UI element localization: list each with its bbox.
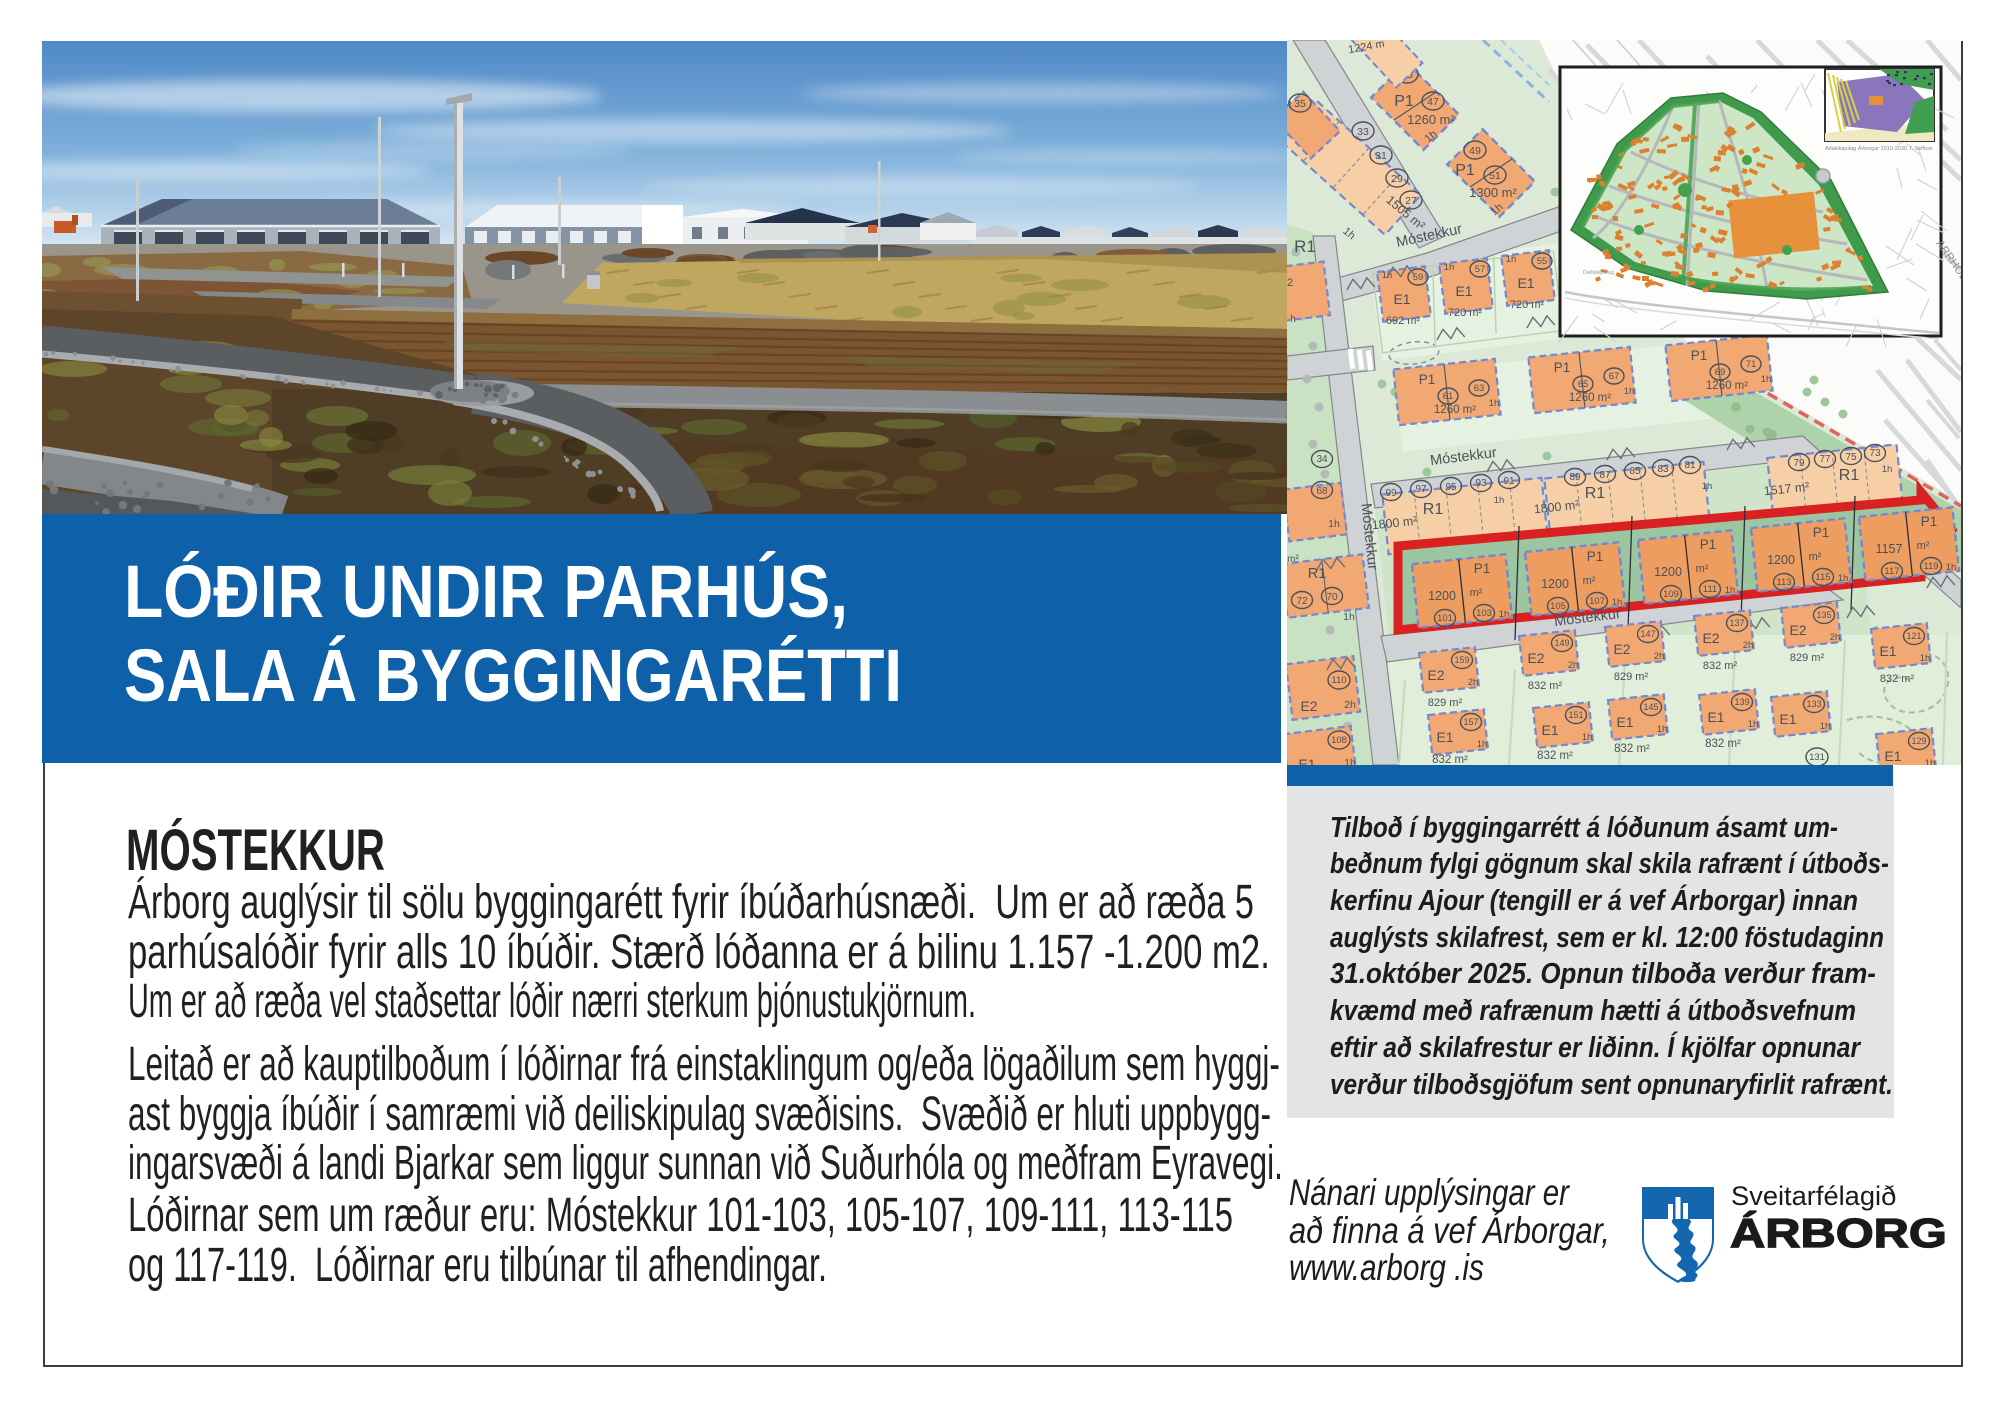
svg-text:m²: m² <box>1917 540 1930 552</box>
svg-text:E2: E2 <box>1789 622 1806 638</box>
svg-text:E1: E1 <box>1779 711 1796 727</box>
svg-text:R1: R1 <box>1585 485 1606 502</box>
svg-text:E2: E2 <box>1613 641 1630 657</box>
svg-text:147: 147 <box>1640 629 1655 639</box>
svg-text:P1: P1 <box>1921 514 1938 529</box>
svg-text:1260 m²: 1260 m² <box>1706 380 1748 392</box>
svg-text:E2: E2 <box>1300 698 1317 714</box>
svg-text:91: 91 <box>1503 476 1515 487</box>
svg-text:121: 121 <box>1906 631 1921 641</box>
svg-text:1260 m²: 1260 m² <box>1569 392 1611 404</box>
svg-text:109: 109 <box>1663 589 1679 600</box>
svg-text:110: 110 <box>1331 675 1346 686</box>
svg-text:R1: R1 <box>1423 501 1444 518</box>
svg-text:m²: m² <box>1809 551 1822 563</box>
svg-text:83: 83 <box>1657 464 1669 475</box>
svg-text:R1: R1 <box>1294 237 1316 256</box>
svg-text:829 m²: 829 m² <box>1790 652 1825 664</box>
svg-text:1h: 1h <box>1657 724 1668 735</box>
svg-text:70: 70 <box>1326 592 1338 603</box>
svg-text:m²: m² <box>1287 554 1299 565</box>
svg-text:99: 99 <box>1385 488 1397 499</box>
svg-text:35: 35 <box>1294 98 1306 110</box>
svg-text:1200: 1200 <box>1767 553 1795 567</box>
svg-text:E1: E1 <box>1616 714 1633 730</box>
svg-text:P1: P1 <box>1419 372 1436 387</box>
svg-text:1h: 1h <box>1494 495 1505 506</box>
svg-text:829 m²: 829 m² <box>1614 671 1649 683</box>
svg-text:34: 34 <box>1316 454 1328 465</box>
svg-text:68: 68 <box>1316 486 1328 497</box>
svg-text:51: 51 <box>1489 170 1501 182</box>
svg-text:832 m²: 832 m² <box>1614 743 1650 755</box>
svg-text:832 m²: 832 m² <box>1432 754 1468 765</box>
svg-text:29: 29 <box>1391 173 1403 185</box>
svg-text:2h: 2h <box>1344 699 1356 711</box>
svg-text:1h: 1h <box>1444 262 1455 273</box>
svg-text:61: 61 <box>1443 391 1454 402</box>
svg-text:139: 139 <box>1734 697 1749 707</box>
svg-text:1h: 1h <box>1477 739 1488 750</box>
svg-text:117: 117 <box>1884 566 1899 577</box>
svg-text:1h: 1h <box>1506 254 1517 265</box>
svg-text:2h: 2h <box>1743 640 1754 651</box>
svg-text:101: 101 <box>1437 613 1453 624</box>
svg-text:720 m²: 720 m² <box>1510 299 1545 311</box>
svg-text:105: 105 <box>1550 601 1566 612</box>
svg-text:79: 79 <box>1793 458 1805 469</box>
svg-text:49: 49 <box>1469 145 1481 157</box>
svg-text:1h: 1h <box>1582 732 1593 743</box>
svg-text:1h: 1h <box>1328 518 1340 530</box>
svg-text:65: 65 <box>1578 379 1589 390</box>
svg-text:P1: P1 <box>1700 537 1717 552</box>
svg-text:E1: E1 <box>1298 756 1315 765</box>
svg-text:1h: 1h <box>1920 653 1931 664</box>
svg-text:1157: 1157 <box>1876 542 1903 556</box>
svg-text:1260 m²: 1260 m² <box>1407 112 1455 127</box>
svg-text:E1: E1 <box>1707 709 1724 725</box>
svg-text:149: 149 <box>1554 638 1569 648</box>
svg-text:157: 157 <box>1463 717 1478 727</box>
svg-text:33: 33 <box>1357 126 1369 138</box>
svg-text:832 m²: 832 m² <box>1703 660 1738 672</box>
svg-text:h: h <box>1290 314 1296 325</box>
svg-text:P1: P1 <box>1691 348 1708 363</box>
svg-text:108: 108 <box>1331 735 1347 746</box>
svg-text:55: 55 <box>1537 256 1548 267</box>
svg-text:Aðalskipulag Árborgar 2010-203: Aðalskipulag Árborgar 2010-2030, f. Self… <box>1825 145 1933 152</box>
svg-text:P1: P1 <box>1813 525 1830 540</box>
svg-text:R1: R1 <box>1308 566 1327 582</box>
svg-text:m²: m² <box>1696 563 1709 575</box>
svg-text:1h: 1h <box>1946 562 1957 573</box>
svg-text:P1: P1 <box>1587 549 1604 564</box>
svg-text:2h: 2h <box>1568 660 1579 671</box>
svg-text:Deiliskipulag: Deiliskipulag <box>1583 270 1614 276</box>
svg-text:1h: 1h <box>1344 757 1356 765</box>
svg-text:129: 129 <box>1911 736 1926 746</box>
svg-text:R1: R1 <box>1839 467 1860 484</box>
svg-text:1h: 1h <box>1838 573 1849 584</box>
svg-text:135: 135 <box>1816 610 1831 620</box>
svg-text:1260 m²: 1260 m² <box>1434 404 1476 416</box>
svg-text:2h: 2h <box>1468 677 1479 688</box>
svg-text:E1: E1 <box>1541 722 1558 738</box>
svg-text:832 m²: 832 m² <box>1705 738 1741 750</box>
svg-text:67: 67 <box>1609 371 1620 382</box>
svg-text:85: 85 <box>1629 466 1641 477</box>
svg-text:81: 81 <box>1684 460 1696 471</box>
svg-text:31: 31 <box>1375 150 1387 162</box>
svg-text:692 m²: 692 m² <box>1386 315 1421 327</box>
svg-text:89: 89 <box>1569 472 1581 483</box>
svg-text:97: 97 <box>1415 484 1427 495</box>
svg-text:57: 57 <box>1475 264 1486 275</box>
svg-text:131: 131 <box>1809 752 1825 763</box>
svg-text:63: 63 <box>1474 383 1485 394</box>
svg-text:832 m²: 832 m² <box>1528 680 1563 692</box>
svg-text:159: 159 <box>1454 655 1469 665</box>
svg-text:103: 103 <box>1476 608 1492 619</box>
svg-text:1h: 1h <box>1343 611 1355 623</box>
svg-text:1200: 1200 <box>1428 589 1456 603</box>
svg-text:1h: 1h <box>1489 398 1500 409</box>
svg-text:E1: E1 <box>1393 291 1410 307</box>
svg-text:1h: 1h <box>1624 386 1635 397</box>
svg-text:m²: m² <box>1470 587 1483 599</box>
svg-text:73: 73 <box>1869 448 1881 459</box>
svg-text:111: 111 <box>1703 584 1717 595</box>
svg-text:93: 93 <box>1475 478 1487 489</box>
svg-text:115: 115 <box>1815 572 1830 583</box>
svg-text:E2: E2 <box>1702 630 1719 646</box>
svg-text:1h: 1h <box>1499 609 1510 620</box>
svg-text:P1: P1 <box>1394 93 1414 110</box>
svg-text:E1: E1 <box>1884 748 1901 764</box>
svg-text:1200: 1200 <box>1654 565 1682 579</box>
svg-text:E2: E2 <box>1527 650 1544 666</box>
svg-text:137: 137 <box>1729 618 1744 628</box>
svg-text:1h: 1h <box>1925 758 1936 765</box>
svg-text:1h: 1h <box>1748 719 1759 730</box>
svg-text:E1: E1 <box>1517 275 1534 291</box>
svg-text:107: 107 <box>1589 596 1605 607</box>
svg-text:1200: 1200 <box>1541 577 1569 591</box>
svg-text:119: 119 <box>1923 561 1938 572</box>
svg-text:832 m²: 832 m² <box>1537 750 1573 762</box>
svg-text:77: 77 <box>1819 454 1831 465</box>
svg-text:1h: 1h <box>1882 464 1893 475</box>
svg-text:71: 71 <box>1746 359 1757 370</box>
svg-text:133: 133 <box>1806 699 1821 709</box>
svg-text:832 m²: 832 m² <box>1880 673 1915 685</box>
svg-text:E1: E1 <box>1879 643 1896 659</box>
svg-text:1h: 1h <box>1702 481 1713 492</box>
svg-text:2h: 2h <box>1654 651 1665 662</box>
svg-text:2: 2 <box>1287 277 1293 289</box>
svg-text:P1: P1 <box>1554 360 1571 375</box>
svg-text:145: 145 <box>1643 702 1658 712</box>
svg-text:69: 69 <box>1715 367 1726 378</box>
svg-text:1h: 1h <box>1820 721 1831 732</box>
svg-text:P1: P1 <box>1474 561 1491 576</box>
svg-text:87: 87 <box>1599 470 1611 481</box>
svg-text:1h: 1h <box>1761 374 1772 385</box>
svg-text:1300 m²: 1300 m² <box>1469 185 1517 200</box>
svg-text:720 m²: 720 m² <box>1448 307 1483 319</box>
svg-text:1h: 1h <box>1725 585 1736 596</box>
svg-text:m²: m² <box>1583 575 1596 587</box>
svg-text:72: 72 <box>1296 596 1308 607</box>
svg-text:E1: E1 <box>1436 729 1453 745</box>
svg-text:E1: E1 <box>1455 283 1472 299</box>
svg-text:2h: 2h <box>1830 632 1841 643</box>
svg-text:75: 75 <box>1845 452 1857 463</box>
svg-text:113: 113 <box>1776 577 1791 588</box>
svg-text:829 m²: 829 m² <box>1428 697 1463 709</box>
svg-text:47: 47 <box>1427 96 1439 108</box>
svg-text:E2: E2 <box>1427 667 1444 683</box>
svg-text:95: 95 <box>1445 482 1457 493</box>
svg-text:P1: P1 <box>1455 162 1475 179</box>
svg-text:151: 151 <box>1568 710 1583 720</box>
